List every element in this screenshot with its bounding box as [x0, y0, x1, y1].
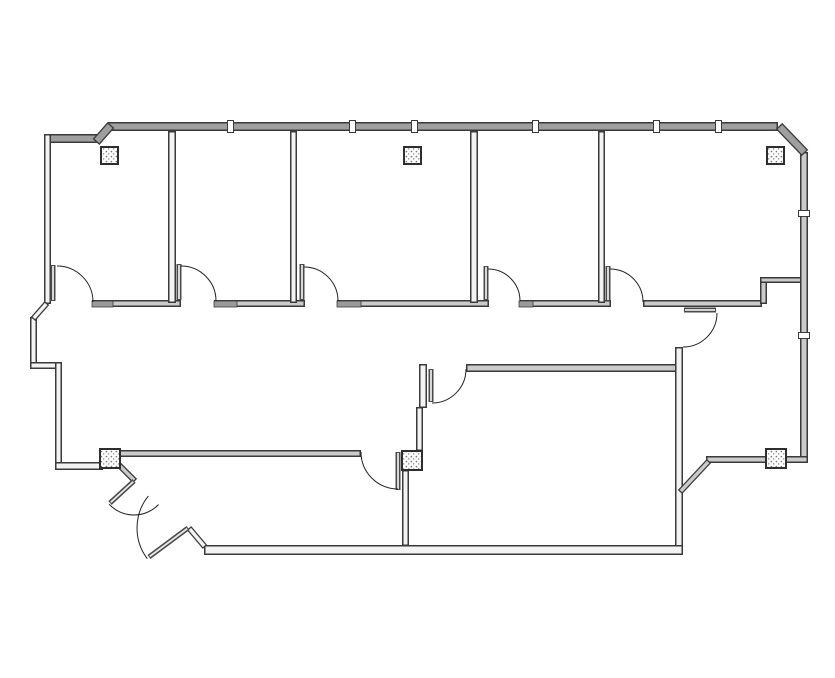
office-2-door-sill — [214, 301, 237, 307]
right-exterior-wall-core — [801, 153, 806, 460]
center-divider-wall-core — [403, 471, 407, 544]
left-exterior-wall-mid-core — [31, 318, 35, 366]
office-4-door-sill — [519, 301, 533, 307]
office-divider-1-2-core — [169, 132, 174, 301]
center-stub-wall-lower-core — [417, 408, 421, 449]
window-mullion-top-4-gap — [533, 121, 538, 132]
column-office-1 — [101, 147, 118, 164]
corridor-wall-seg-4-core — [521, 301, 609, 305]
column-wing — [766, 449, 786, 468]
floor-plan-canvas — [0, 0, 835, 678]
lower-left-room-top-wall-core — [119, 451, 359, 455]
plan-background — [0, 0, 835, 678]
topleft-exterior-wall-core — [45, 135, 95, 141]
top-exterior-wall-core — [109, 123, 776, 129]
window-mullion-top-6-gap — [716, 121, 721, 132]
office-1-door-sill — [92, 301, 113, 307]
column-office-3 — [404, 147, 421, 164]
column-center — [402, 451, 422, 470]
column-office-5 — [767, 147, 784, 164]
lower-right-room-top-wall-core — [467, 365, 681, 370]
window-mullion-top-5-gap — [654, 121, 659, 132]
floor-plan-page — [0, 0, 835, 678]
wing-bottom-wall-core — [707, 457, 806, 461]
left-exterior-wall-lower-core — [56, 363, 60, 466]
center-stub-wall-upper-core — [420, 365, 425, 406]
corridor-wall-seg-5-core — [644, 301, 760, 305]
window-mullion-top-1-gap — [228, 121, 233, 132]
window-mullion-right-1-gap — [799, 211, 809, 216]
entry-side-wall-core — [56, 463, 101, 468]
lower-right-room-right-wall-core — [676, 348, 681, 553]
window-mullion-top-2-gap — [350, 121, 355, 132]
office-divider-2-3-core — [291, 132, 295, 301]
office-divider-4-5-core — [599, 132, 603, 301]
column-entry — [100, 449, 120, 468]
bottom-exterior-wall-core — [205, 546, 681, 553]
office-divider-3-4-core — [471, 132, 476, 301]
left-exterior-wall-upper-core — [45, 135, 49, 302]
office-3-door-sill — [337, 301, 361, 307]
notch-wall-horizontal-core — [761, 278, 804, 281]
window-mullion-top-3-gap — [412, 121, 417, 132]
window-mullion-right-2-gap — [799, 333, 809, 338]
